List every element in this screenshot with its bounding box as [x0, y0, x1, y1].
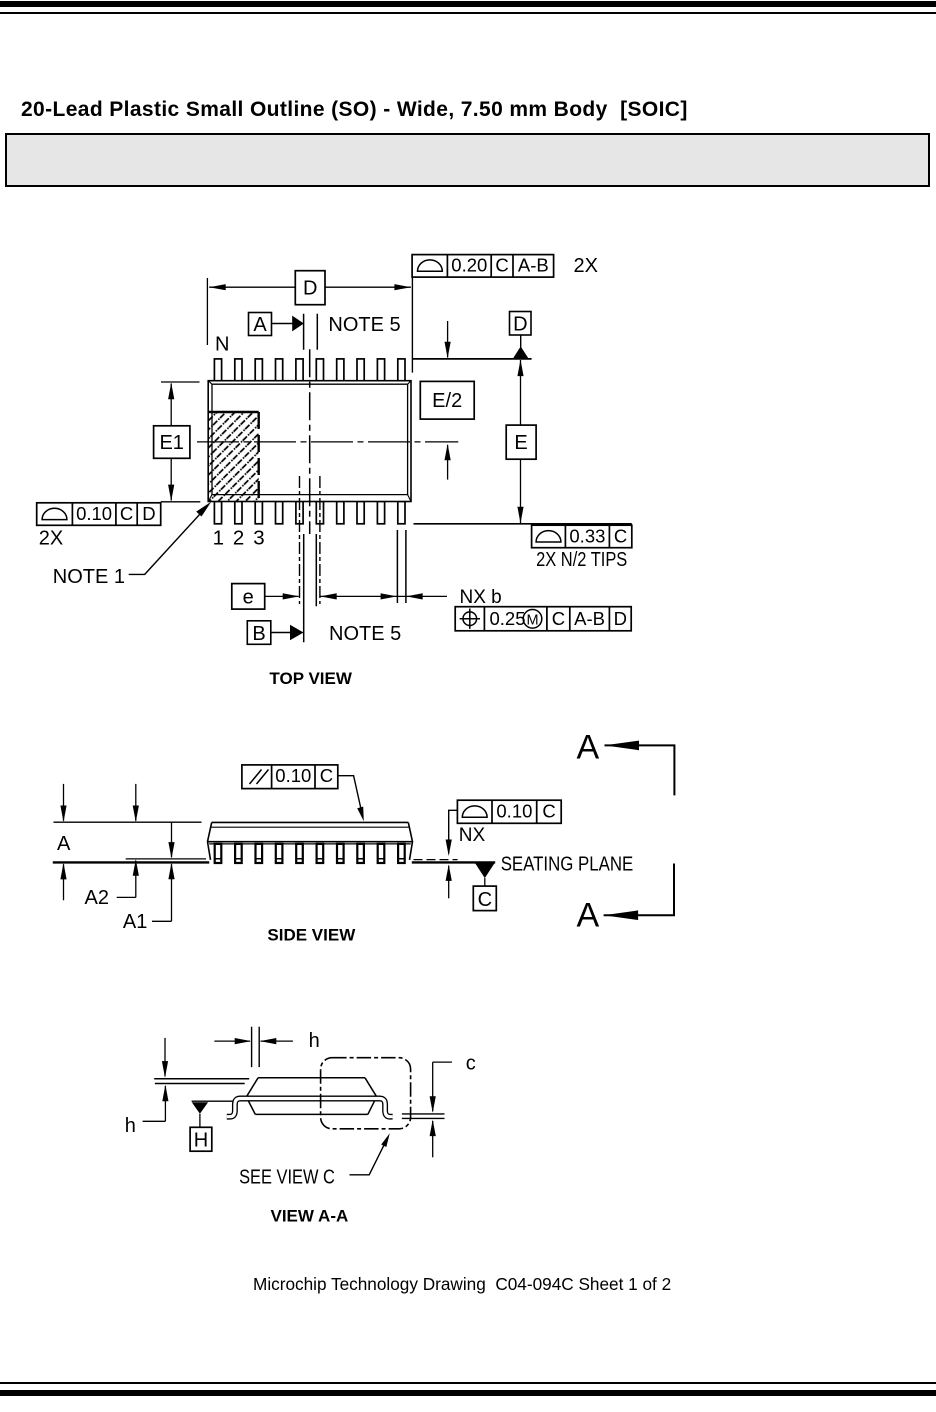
svg-text:2X N/2 TIPS: 2X N/2 TIPS: [536, 549, 627, 571]
svg-text:E: E: [514, 432, 527, 454]
svg-text:C: C: [495, 255, 508, 276]
svg-text:3: 3: [253, 527, 264, 550]
svg-text:NOTE 5: NOTE 5: [329, 623, 401, 645]
svg-text:A2: A2: [85, 887, 109, 909]
svg-text:NOTE 5: NOTE 5: [328, 314, 400, 336]
svg-text:0.25: 0.25: [490, 608, 526, 629]
svg-text:c: c: [466, 1053, 476, 1075]
svg-text:C: C: [552, 608, 565, 629]
svg-text:E/2: E/2: [432, 390, 462, 412]
svg-text:0.33: 0.33: [569, 525, 605, 546]
svg-text:D: D: [614, 608, 627, 629]
svg-text:A: A: [253, 314, 267, 336]
svg-text:2X: 2X: [39, 527, 63, 549]
svg-text:2: 2: [233, 527, 244, 550]
svg-text:0.10: 0.10: [275, 765, 311, 786]
svg-text:M: M: [526, 612, 538, 628]
svg-text:D: D: [303, 277, 317, 299]
svg-text:A: A: [57, 833, 71, 855]
svg-text:NX: NX: [459, 825, 486, 846]
svg-text:SEE VIEW C: SEE VIEW C: [239, 1167, 335, 1189]
svg-text:C: C: [614, 525, 627, 546]
svg-text:1: 1: [213, 527, 224, 550]
svg-text:A-B: A-B: [574, 608, 605, 629]
svg-text:NX b: NX b: [460, 587, 502, 608]
svg-text:TOP VIEW: TOP VIEW: [269, 669, 352, 688]
svg-text:SEATING PLANE: SEATING PLANE: [501, 853, 634, 875]
svg-text:0.10: 0.10: [496, 801, 532, 822]
svg-text:B: B: [252, 623, 265, 645]
svg-text:VIEW A-A: VIEW A-A: [271, 1207, 349, 1226]
svg-text:D: D: [513, 314, 527, 336]
svg-text:H: H: [194, 1129, 208, 1151]
svg-text:SIDE VIEW: SIDE VIEW: [267, 925, 356, 944]
svg-text:D: D: [142, 503, 155, 524]
svg-text:A: A: [577, 728, 600, 766]
svg-text:NOTE 1: NOTE 1: [53, 566, 125, 588]
svg-text:N: N: [215, 333, 229, 355]
svg-text:C: C: [542, 801, 555, 822]
svg-text:C: C: [478, 889, 492, 911]
svg-text:h: h: [125, 1115, 136, 1137]
svg-text:A1: A1: [123, 911, 147, 933]
svg-text:2X: 2X: [574, 255, 598, 277]
svg-text:C: C: [320, 765, 333, 786]
svg-text:E1: E1: [159, 432, 183, 454]
svg-text:A-B: A-B: [518, 255, 549, 276]
svg-text:e: e: [243, 587, 254, 609]
svg-text:h: h: [309, 1030, 320, 1052]
svg-text:A: A: [577, 896, 600, 934]
svg-text:0.20: 0.20: [451, 255, 487, 276]
svg-text:C: C: [120, 503, 133, 524]
svg-text:0.10: 0.10: [76, 503, 112, 524]
